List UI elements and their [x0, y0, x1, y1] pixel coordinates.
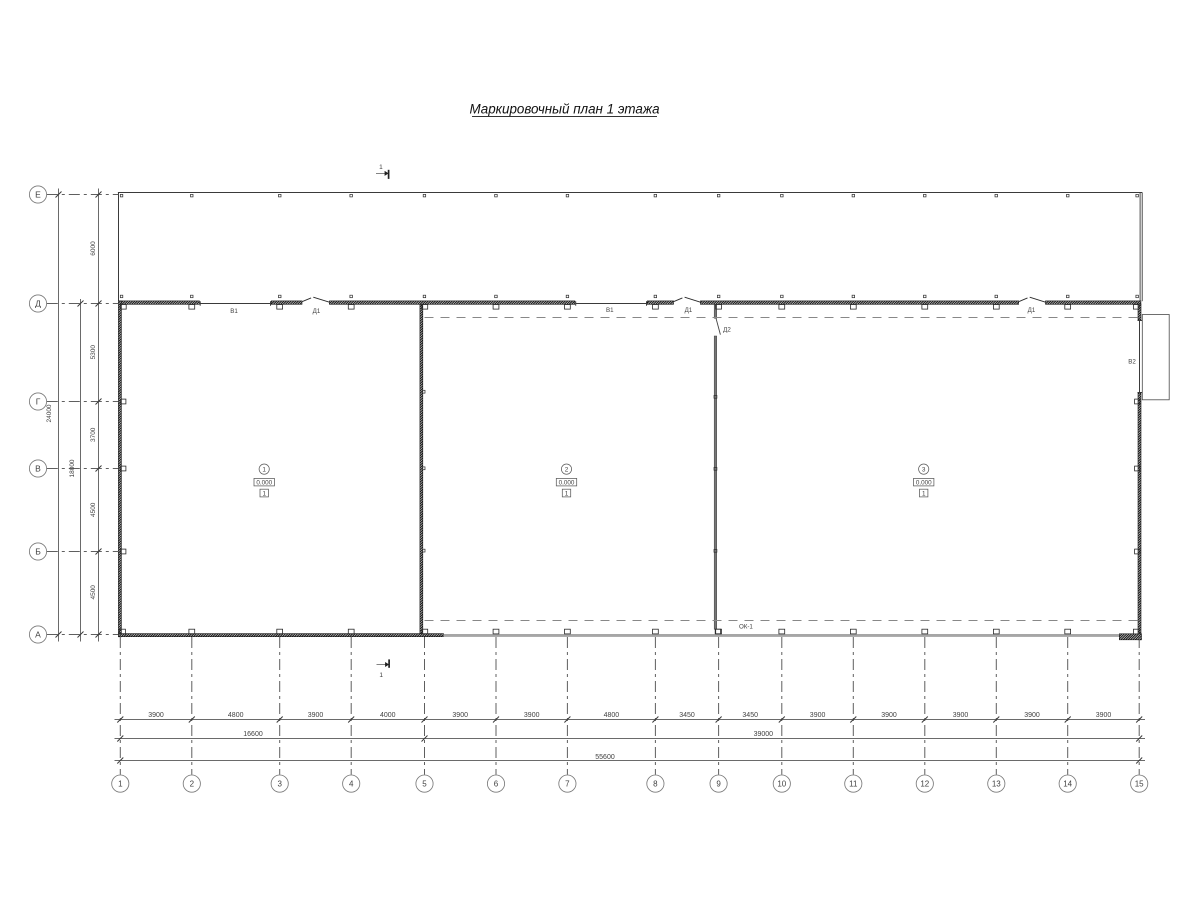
svg-text:10: 10: [777, 780, 786, 789]
svg-text:24000: 24000: [46, 404, 53, 422]
svg-text:3: 3: [277, 780, 282, 789]
svg-text:Д1: Д1: [1028, 307, 1036, 314]
svg-text:1: 1: [922, 490, 926, 497]
svg-text:1: 1: [565, 490, 569, 497]
svg-text:3900: 3900: [810, 712, 826, 719]
svg-text:0.000: 0.000: [256, 480, 272, 487]
svg-text:6000: 6000: [90, 241, 97, 256]
svg-text:3900: 3900: [148, 712, 164, 719]
svg-text:7: 7: [565, 780, 570, 789]
svg-text:В1: В1: [606, 307, 614, 314]
svg-text:1: 1: [379, 672, 383, 679]
svg-text:55600: 55600: [595, 754, 615, 761]
svg-text:0.000: 0.000: [559, 480, 575, 487]
svg-text:1: 1: [262, 467, 266, 474]
svg-text:8: 8: [653, 780, 658, 789]
svg-text:3: 3: [922, 467, 926, 474]
svg-text:18000: 18000: [69, 459, 76, 477]
svg-text:Д: Д: [35, 299, 41, 309]
svg-text:4800: 4800: [228, 712, 244, 719]
svg-text:2: 2: [190, 780, 195, 789]
svg-text:1: 1: [379, 164, 383, 171]
svg-text:12: 12: [920, 780, 929, 789]
svg-text:Д2: Д2: [723, 326, 731, 333]
svg-text:4000: 4000: [380, 712, 396, 719]
svg-text:Д1: Д1: [313, 308, 321, 315]
svg-text:3900: 3900: [1024, 712, 1040, 719]
svg-text:Б: Б: [35, 547, 41, 557]
svg-text:В: В: [35, 464, 41, 474]
svg-text:2: 2: [565, 467, 569, 474]
svg-text:3900: 3900: [308, 712, 324, 719]
svg-text:4500: 4500: [90, 585, 97, 600]
svg-text:3900: 3900: [881, 712, 897, 719]
svg-text:Е: Е: [35, 190, 41, 200]
svg-text:А: А: [35, 630, 41, 640]
svg-text:Маркировочный план 1 этажа: Маркировочный план 1 этажа: [469, 102, 659, 117]
svg-text:0.000: 0.000: [916, 480, 932, 487]
svg-text:39000: 39000: [754, 731, 774, 738]
svg-text:3900: 3900: [1096, 712, 1112, 719]
svg-text:3450: 3450: [742, 712, 758, 719]
svg-text:3700: 3700: [90, 427, 97, 442]
svg-text:4: 4: [349, 780, 354, 789]
svg-text:13: 13: [992, 780, 1001, 789]
svg-text:6: 6: [494, 780, 499, 789]
svg-text:11: 11: [849, 780, 858, 789]
svg-text:ОК-1: ОК-1: [739, 623, 753, 630]
svg-text:14: 14: [1063, 780, 1072, 789]
svg-text:4800: 4800: [604, 712, 620, 719]
svg-text:3900: 3900: [452, 712, 468, 719]
svg-text:16600: 16600: [243, 731, 263, 738]
svg-text:В2: В2: [1128, 358, 1136, 365]
svg-text:1: 1: [262, 490, 266, 497]
svg-text:Д1: Д1: [685, 307, 693, 314]
svg-text:15: 15: [1135, 780, 1144, 789]
svg-text:Г: Г: [36, 397, 41, 407]
svg-text:1: 1: [118, 780, 123, 789]
svg-text:5: 5: [422, 780, 427, 789]
svg-text:3900: 3900: [953, 712, 969, 719]
svg-text:5300: 5300: [90, 345, 97, 360]
svg-text:4500: 4500: [90, 502, 97, 517]
svg-text:В1: В1: [230, 308, 238, 315]
svg-text:9: 9: [716, 780, 721, 789]
svg-text:3450: 3450: [679, 712, 695, 719]
svg-text:3900: 3900: [524, 712, 540, 719]
